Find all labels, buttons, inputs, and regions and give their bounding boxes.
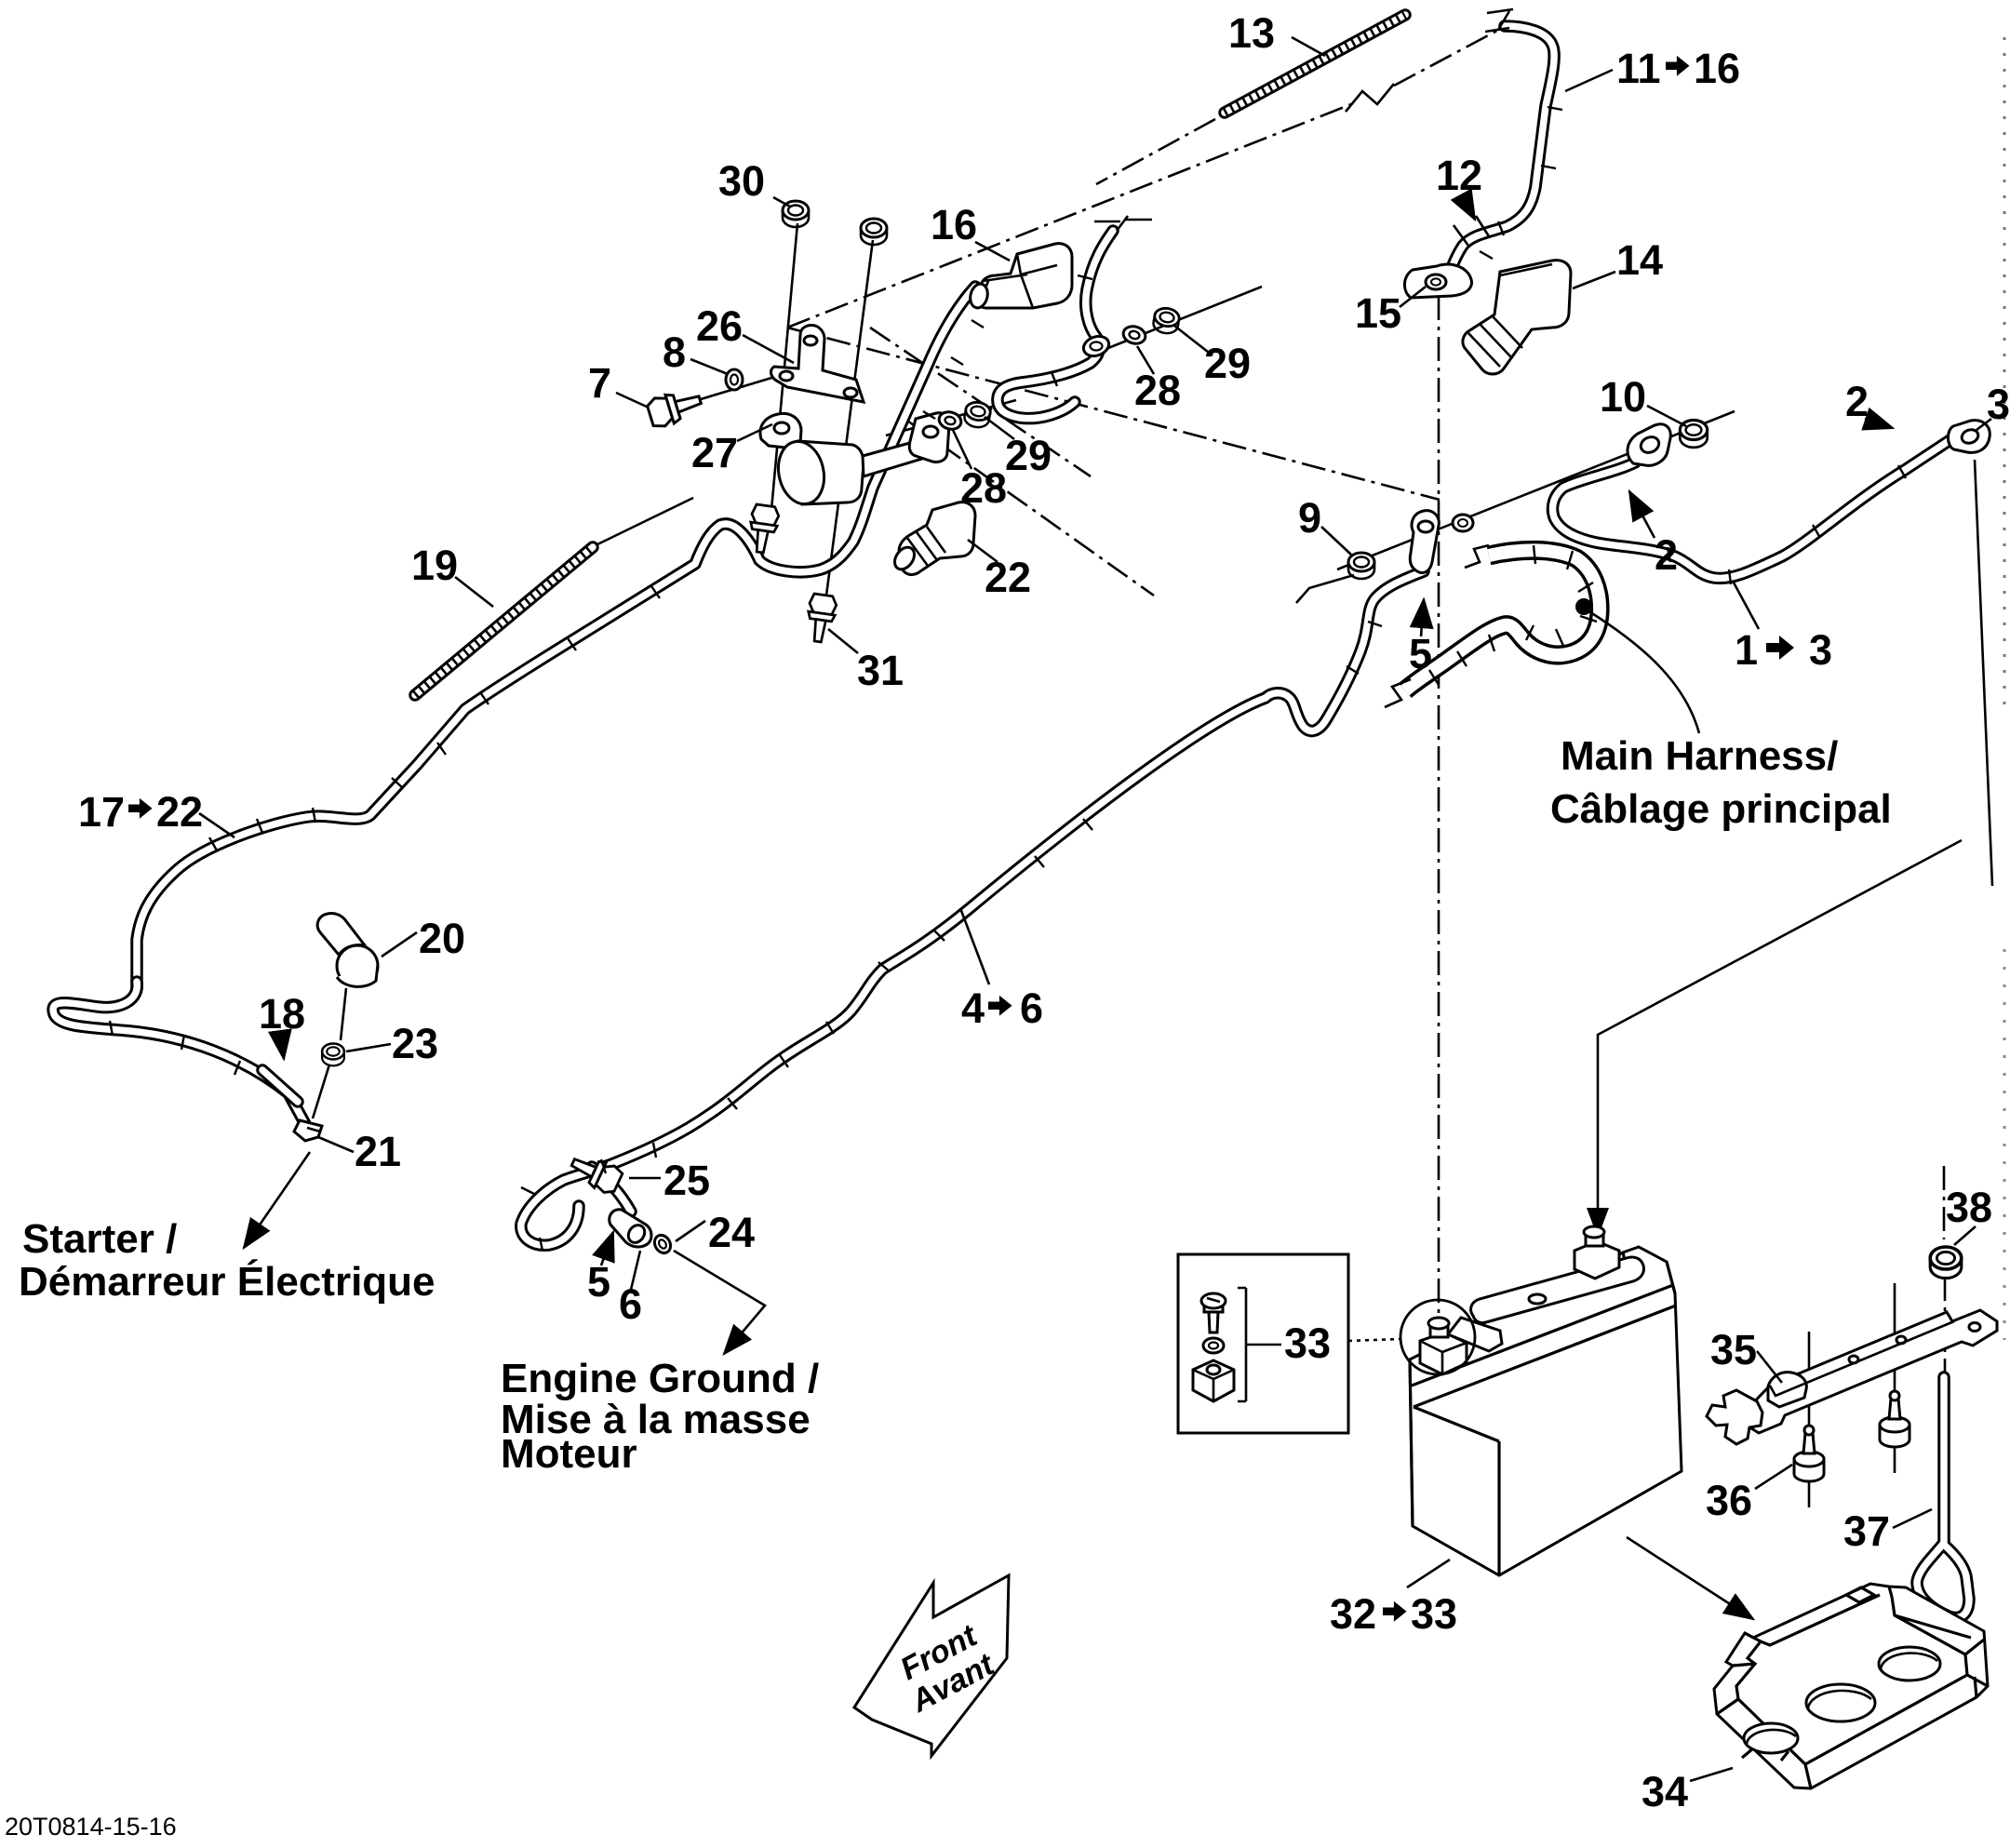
svg-text:35: 35 (1710, 1326, 1757, 1373)
svg-text:34: 34 (1641, 1768, 1688, 1815)
svg-text:21: 21 (355, 1128, 401, 1175)
svg-text:3: 3 (1987, 381, 2010, 428)
svg-text:5: 5 (1409, 630, 1432, 677)
svg-text:6: 6 (619, 1280, 642, 1328)
svg-text:16: 16 (931, 201, 977, 248)
svg-text:10: 10 (1600, 373, 1646, 421)
svg-text:20T0814-15-16: 20T0814-15-16 (5, 1813, 177, 1841)
svg-text:2: 2 (1655, 531, 1678, 579)
svg-text:19: 19 (411, 542, 458, 589)
svg-text:Démarreur Électrique: Démarreur Électrique (19, 1258, 435, 1305)
svg-text:8: 8 (663, 328, 686, 376)
svg-text:Main Harness/: Main Harness/ (1561, 733, 1838, 779)
svg-text:30: 30 (718, 157, 765, 205)
svg-text:22: 22 (156, 788, 203, 836)
svg-text:29: 29 (1204, 340, 1251, 387)
svg-text:28: 28 (1134, 367, 1181, 414)
svg-text:23: 23 (392, 1020, 438, 1067)
svg-text:25: 25 (663, 1157, 710, 1204)
svg-text:33: 33 (1284, 1319, 1331, 1367)
svg-text:18: 18 (259, 990, 305, 1038)
svg-text:33: 33 (1411, 1590, 1457, 1638)
svg-text:Moteur: Moteur (501, 1431, 637, 1477)
svg-text:3: 3 (1809, 626, 1832, 674)
svg-text:15: 15 (1355, 289, 1401, 337)
svg-text:36: 36 (1706, 1477, 1752, 1524)
svg-text:1: 1 (1735, 626, 1758, 674)
svg-text:38: 38 (1946, 1184, 1992, 1231)
svg-text:26: 26 (696, 302, 743, 350)
svg-text:20: 20 (419, 915, 465, 962)
svg-text:22: 22 (985, 554, 1031, 601)
svg-text:31: 31 (857, 647, 904, 694)
svg-text:17: 17 (78, 788, 125, 836)
svg-text:24: 24 (708, 1209, 755, 1256)
svg-text:13: 13 (1228, 9, 1275, 57)
svg-text:2: 2 (1845, 378, 1869, 425)
svg-text:12: 12 (1436, 152, 1482, 199)
svg-text:27: 27 (691, 429, 738, 476)
svg-text:7: 7 (588, 359, 611, 407)
svg-text:29: 29 (1005, 432, 1052, 479)
svg-text:32: 32 (1330, 1590, 1376, 1638)
svg-text:37: 37 (1843, 1507, 1890, 1555)
svg-text:14: 14 (1616, 236, 1663, 284)
svg-text:9: 9 (1298, 494, 1321, 542)
svg-text:28: 28 (960, 464, 1007, 512)
svg-text:Câblage principal: Câblage principal (1550, 786, 1892, 832)
svg-text:16: 16 (1694, 45, 1740, 92)
svg-text:Starter /: Starter / (22, 1216, 177, 1262)
svg-text:6: 6 (1020, 984, 1043, 1032)
svg-text:5: 5 (587, 1258, 610, 1306)
svg-text:11: 11 (1616, 45, 1661, 92)
svg-text:Engine Ground /: Engine Ground / (501, 1356, 819, 1401)
svg-text:4: 4 (961, 984, 985, 1032)
